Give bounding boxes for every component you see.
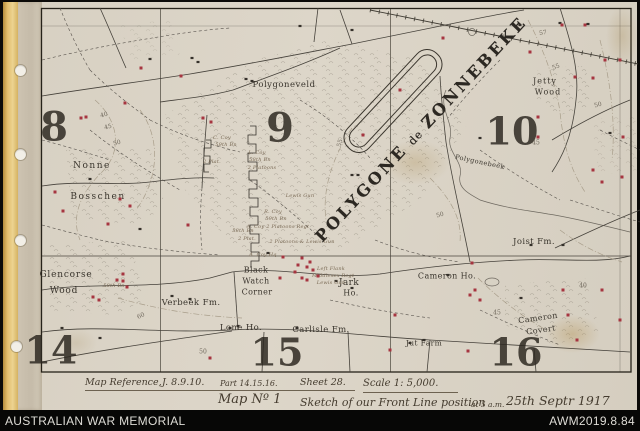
map-title-time: at 5 a.m. bbox=[471, 400, 504, 409]
archival-scan: POLYGONE de ZONNEBEKE 8910141516Polygone… bbox=[0, 0, 640, 431]
caption-area: Map Reference, J. 8.9.10. Part 14.15.16.… bbox=[0, 0, 640, 431]
map-title-date: 25th Septr 1917 bbox=[506, 393, 610, 408]
map-number: Map Nº 1 bbox=[218, 392, 281, 407]
map-reference-value: J. 8.9.10. bbox=[162, 377, 204, 388]
map-reference-label: Map Reference, bbox=[85, 377, 162, 388]
map-part: Part 14.15.16. bbox=[220, 379, 278, 388]
map-scale: Scale 1: 5,000. bbox=[363, 378, 438, 389]
caption-underline bbox=[85, 390, 355, 391]
map-sheet: Sheet 28. bbox=[300, 377, 346, 388]
map-title-text: Sketch of our Front Line position bbox=[300, 396, 485, 409]
footer-bar: AUSTRALIAN WAR MEMORIAL AWM2019.8.84 bbox=[0, 410, 640, 431]
scale-underline bbox=[363, 392, 458, 393]
footer-org-label: AUSTRALIAN WAR MEMORIAL bbox=[5, 414, 185, 428]
footer-accession-id: AWM2019.8.84 bbox=[549, 414, 635, 428]
